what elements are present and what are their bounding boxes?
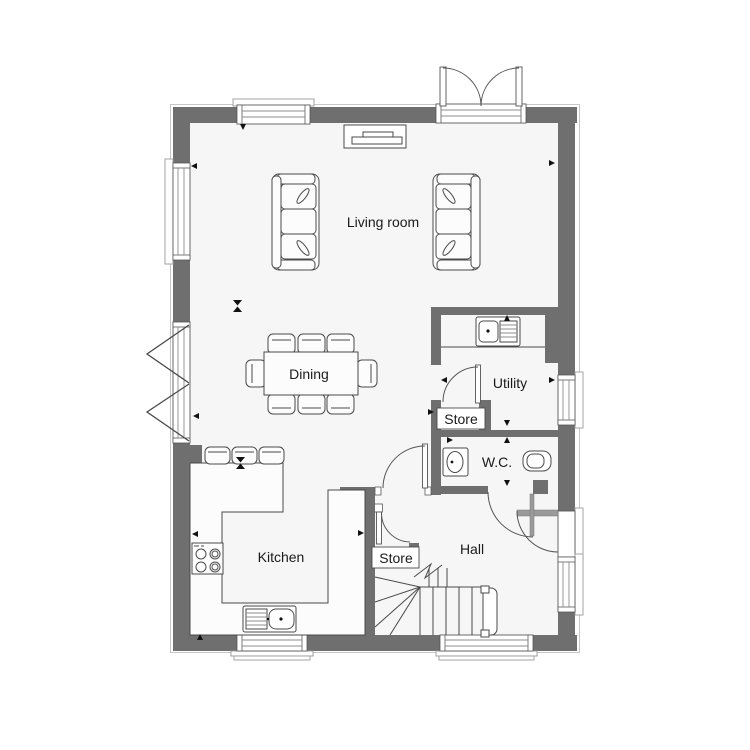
label-store-hall: Store xyxy=(379,550,413,566)
label-utility: Utility xyxy=(493,375,527,391)
floor-plan-canvas: Living room Dining Utility Store W.C. Ki… xyxy=(0,0,750,750)
floor-plan: Living room Dining Utility Store W.C. Ki… xyxy=(0,0,750,750)
wash-basin-icon xyxy=(443,448,468,476)
label-kitchen: Kitchen xyxy=(258,549,305,565)
window-icon xyxy=(436,635,537,660)
window-icon xyxy=(558,554,583,615)
window-icon xyxy=(558,372,583,428)
label-dining: Dining xyxy=(289,366,329,382)
label-living-room: Living room xyxy=(347,214,419,230)
stair-handrail xyxy=(483,588,497,635)
sofa-icon xyxy=(272,174,319,270)
sofa-icon xyxy=(433,174,480,270)
window-icon xyxy=(231,635,313,660)
hob-icon xyxy=(192,543,223,574)
label-wc: W.C. xyxy=(482,454,512,470)
window-icon xyxy=(165,159,190,264)
label-store-utility: Store xyxy=(444,411,478,427)
bar-stool-icon xyxy=(205,447,284,464)
label-hall: Hall xyxy=(460,541,484,557)
tv-unit-icon xyxy=(344,125,406,148)
toilet-icon xyxy=(523,451,551,471)
window-icon xyxy=(233,99,314,124)
kitchen-sink-icon xyxy=(243,606,296,632)
